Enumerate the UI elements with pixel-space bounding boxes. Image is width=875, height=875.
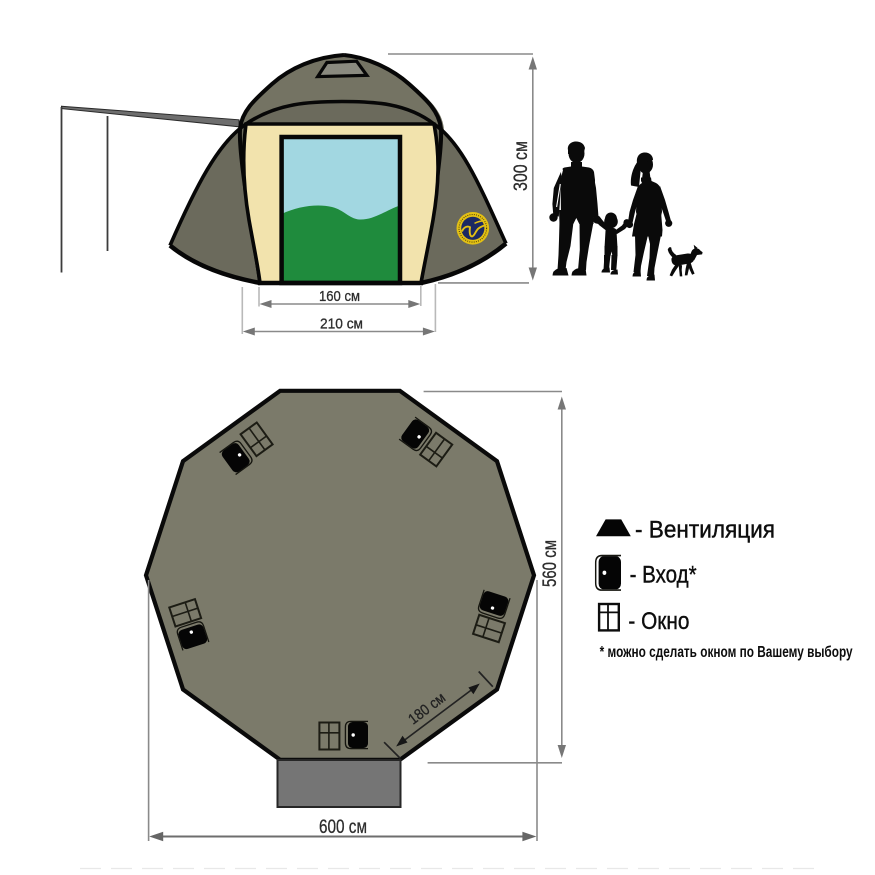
svg-text:560 см: 560 см [539, 540, 561, 587]
svg-text:* можно сделать окном по Вашем: * можно сделать окном по Вашему выбору [600, 644, 853, 661]
svg-text:- Вентиляция: - Вентиляция [635, 516, 775, 543]
svg-text:- Окно: - Окно [628, 608, 689, 635]
svg-text:600 см: 600 см [319, 816, 367, 838]
svg-text:- Вход*: - Вход* [630, 561, 697, 588]
svg-text:160 см: 160 см [319, 288, 360, 305]
svg-text:210 см: 210 см [320, 316, 363, 333]
svg-text:300 см: 300 см [510, 141, 532, 191]
